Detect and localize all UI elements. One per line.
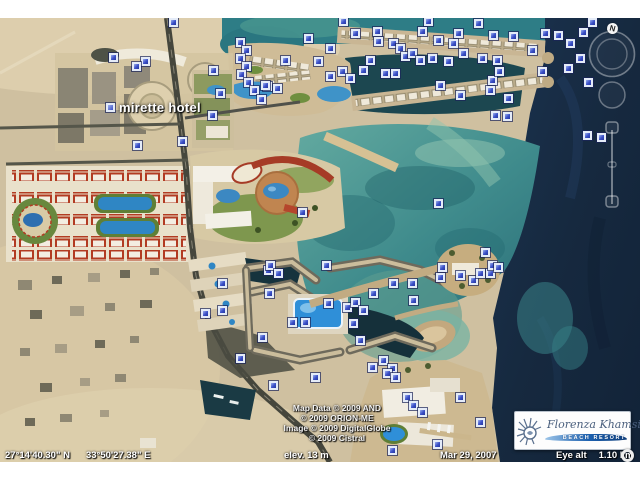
hotel-label[interactable]: mirette hotel [106, 100, 201, 115]
hotel-placemark-icon[interactable] [106, 103, 115, 112]
photo-placemark-icon[interactable] [201, 309, 210, 318]
photo-placemark-icon[interactable] [478, 54, 487, 63]
photo-placemark-icon[interactable] [541, 29, 550, 38]
photo-placemark-icon[interactable] [351, 29, 360, 38]
attribution-line: © 2009 ORION-ME [252, 413, 422, 423]
photo-placemark-icon[interactable] [438, 263, 447, 272]
photo-placemark-icon[interactable] [373, 27, 382, 36]
photo-placemark-icon[interactable] [374, 37, 383, 46]
top-letterbox [0, 0, 640, 18]
photo-placemark-icon[interactable] [379, 356, 388, 365]
photo-placemark-icon[interactable] [314, 57, 323, 66]
photo-placemark-icon[interactable] [424, 18, 433, 26]
photo-placemark-icon[interactable] [456, 91, 465, 100]
photo-placemark-icon[interactable] [368, 363, 377, 372]
pointer-latitude: 27°14'40.30" N [5, 450, 70, 461]
photo-placemark-icon[interactable] [311, 373, 320, 382]
photo-placemark-icon[interactable] [564, 64, 573, 73]
photo-placemark-icon[interactable] [109, 53, 118, 62]
photo-placemark-icon[interactable] [366, 56, 375, 65]
photo-placemark-icon[interactable] [409, 296, 418, 305]
photo-placemark-icon[interactable] [459, 49, 468, 58]
photo-placemark-icon[interactable] [509, 32, 518, 41]
photo-placemark-icon[interactable] [257, 95, 266, 104]
photo-placemark-icon[interactable] [486, 86, 495, 95]
placemarks-layer [0, 18, 640, 462]
photo-placemark-icon[interactable] [418, 27, 427, 36]
photo-placemark-icon[interactable] [369, 289, 378, 298]
photo-placemark-icon[interactable] [169, 18, 178, 27]
photo-placemark-icon[interactable] [416, 56, 425, 65]
attribution-line: © 2009 Cistral [252, 433, 422, 443]
photo-placemark-icon[interactable] [141, 57, 150, 66]
photo-placemark-icon[interactable] [250, 86, 259, 95]
photo-placemark-icon[interactable] [274, 269, 283, 278]
photo-placemark-icon[interactable] [381, 69, 390, 78]
photo-placemark-icon[interactable] [208, 111, 217, 120]
photo-placemark-icon[interactable] [326, 72, 335, 81]
photo-placemark-icon[interactable] [476, 269, 485, 278]
photo-placemark-icon[interactable] [488, 76, 497, 85]
photo-placemark-icon[interactable] [436, 273, 445, 282]
elevation-text: elev. 13 m [284, 450, 329, 461]
photo-placemark-icon[interactable] [356, 336, 365, 345]
logo-title: Florenza Khamsin [547, 418, 640, 431]
photo-placemark-icon[interactable] [449, 39, 458, 48]
resort-logo: Florenza Khamsin BEACH RESORT [514, 411, 631, 450]
photo-placemark-icon[interactable] [304, 34, 313, 43]
photo-placemark-icon[interactable] [444, 57, 453, 66]
photo-placemark-icon[interactable] [298, 208, 307, 217]
photo-placemark-icon[interactable] [346, 74, 355, 83]
photo-placemark-icon[interactable] [474, 19, 483, 28]
photo-placemark-icon[interactable] [434, 199, 443, 208]
photo-placemark-icon[interactable] [339, 18, 348, 26]
photo-placemark-icon[interactable] [504, 94, 513, 103]
photo-placemark-icon[interactable] [434, 36, 443, 45]
photo-placemark-icon[interactable] [576, 54, 585, 63]
hotel-label-text: mirette hotel [119, 100, 201, 115]
bottom-letterbox [0, 462, 640, 480]
look-joystick[interactable] [585, 26, 640, 82]
photo-placemark-icon[interactable] [236, 354, 245, 363]
photo-placemark-icon[interactable] [178, 137, 187, 146]
photo-placemark-icon[interactable] [391, 69, 400, 78]
photo-placemark-icon[interactable] [428, 54, 437, 63]
photo-placemark-icon[interactable] [554, 31, 563, 40]
photo-placemark-icon[interactable] [265, 289, 274, 298]
photo-placemark-icon[interactable] [359, 66, 368, 75]
eye-altitude-label: Eye alt [556, 450, 587, 461]
photo-placemark-icon[interactable] [456, 271, 465, 280]
photo-placemark-icon[interactable] [322, 261, 331, 270]
photo-placemark-icon[interactable] [566, 39, 575, 48]
photo-placemark-icon[interactable] [281, 56, 290, 65]
photo-placemark-icon[interactable] [538, 67, 547, 76]
photo-placemark-icon[interactable] [583, 131, 592, 140]
imagery-date: Mar 29, 2007 [440, 450, 497, 461]
move-joystick[interactable] [597, 80, 627, 110]
photo-placemark-icon[interactable] [493, 56, 502, 65]
google-earth-window: { "labels": { "hotel_label": "mirette ho… [0, 0, 640, 480]
photo-placemark-icon[interactable] [269, 381, 278, 390]
photo-placemark-icon[interactable] [489, 31, 498, 40]
attribution-line: Image © 2009 DigitalGlobe [252, 423, 422, 433]
photo-placemark-icon[interactable] [273, 84, 282, 93]
earth-viewport[interactable]: mirette hotel [0, 18, 640, 462]
photo-placemark-icon[interactable] [389, 279, 398, 288]
photo-placemark-icon[interactable] [476, 418, 485, 427]
photo-placemark-icon[interactable] [218, 279, 227, 288]
photo-placemark-icon[interactable] [359, 306, 368, 315]
attribution: Map Data © 2009 AND © 2009 ORION-ME Imag… [252, 403, 422, 443]
photo-placemark-icon[interactable] [133, 141, 142, 150]
photo-placemark-icon[interactable] [491, 111, 500, 120]
photo-placemark-icon[interactable] [216, 89, 225, 98]
photo-placemark-icon[interactable] [218, 306, 227, 315]
photo-placemark-icon[interactable] [209, 66, 218, 75]
logo-lionfish-icon [515, 414, 545, 448]
photo-placemark-icon[interactable] [324, 299, 333, 308]
zoom-slider[interactable] [598, 120, 626, 214]
photo-placemark-icon[interactable] [528, 46, 537, 55]
photo-placemark-icon[interactable] [433, 440, 442, 449]
photo-placemark-icon[interactable] [408, 279, 417, 288]
pointer-coordinates: 27°14'40.30" N 33°50'27.38" E [5, 450, 150, 461]
pointer-longitude: 33°50'27.38" E [86, 450, 150, 461]
photo-placemark-icon[interactable] [456, 393, 465, 402]
streaming-indicator-icon [621, 449, 634, 462]
photo-placemark-icon[interactable] [301, 318, 310, 327]
attribution-line: Map Data © 2009 AND [252, 403, 422, 413]
photo-placemark-icon[interactable] [454, 29, 463, 38]
photo-placemark-icon[interactable] [288, 318, 297, 327]
photo-placemark-icon[interactable] [349, 319, 358, 328]
photo-placemark-icon[interactable] [503, 112, 512, 121]
logo-subtitle: BEACH RESORT [563, 435, 626, 441]
photo-placemark-icon[interactable] [326, 44, 335, 53]
photo-placemark-icon[interactable] [494, 263, 503, 272]
photo-placemark-icon[interactable] [495, 67, 504, 76]
photo-placemark-icon[interactable] [436, 81, 445, 90]
photo-placemark-icon[interactable] [132, 62, 141, 71]
photo-placemark-icon[interactable] [481, 248, 490, 257]
photo-placemark-icon[interactable] [258, 333, 267, 342]
photo-placemark-icon[interactable] [261, 81, 270, 90]
photo-placemark-icon[interactable] [391, 373, 400, 382]
photo-placemark-icon[interactable] [388, 446, 397, 455]
